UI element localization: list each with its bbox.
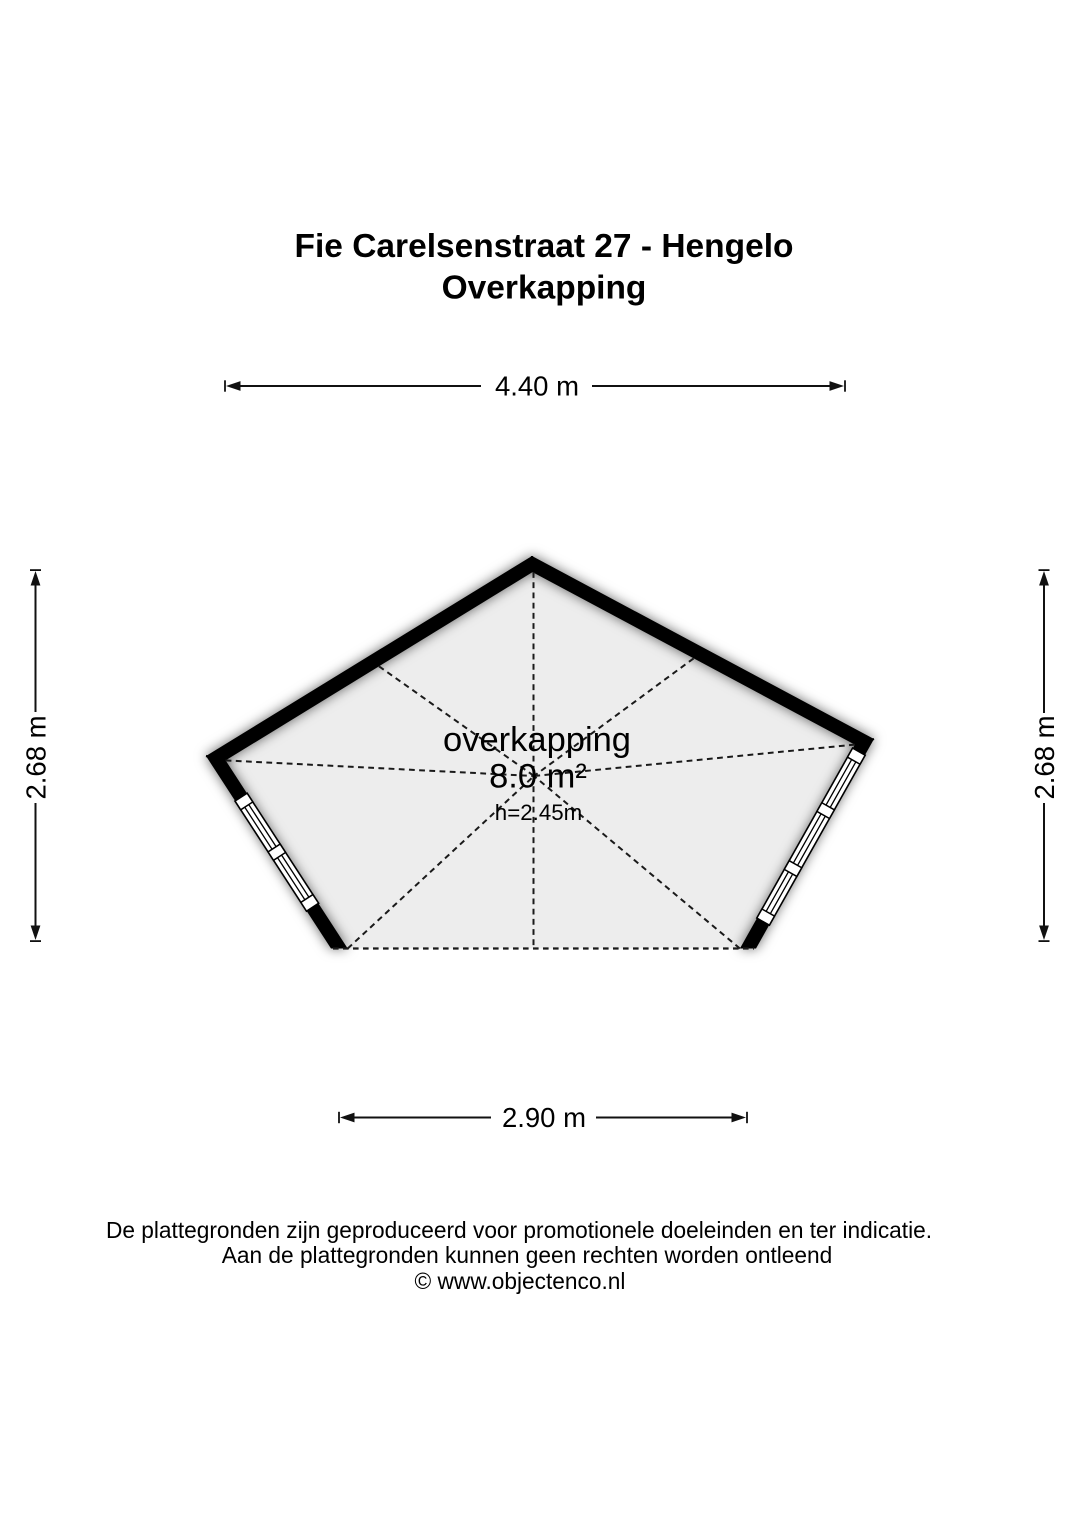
svg-text:2.90 m: 2.90 m	[502, 1102, 586, 1133]
svg-text:2.68 m: 2.68 m	[21, 715, 52, 799]
svg-text:4.40 m: 4.40 m	[495, 371, 579, 402]
svg-text:2.68 m: 2.68 m	[1029, 715, 1060, 799]
svg-text:© www.objectenco.nl: © www.objectenco.nl	[415, 1268, 626, 1294]
svg-text:h=2.45m: h=2.45m	[495, 800, 582, 825]
svg-text:8.0 m²: 8.0 m²	[489, 758, 587, 796]
svg-text:overkapping: overkapping	[443, 721, 631, 759]
svg-text:Fie Carelsenstraat 27 - Hengel: Fie Carelsenstraat 27 - Hengelo	[295, 228, 794, 265]
svg-text:Overkapping: Overkapping	[442, 270, 647, 307]
svg-text:Aan de plattegronden kunnen ge: Aan de plattegronden kunnen geen rechten…	[222, 1242, 833, 1268]
svg-text:De plattegronden zijn geproduc: De plattegronden zijn geproduceerd voor …	[106, 1217, 932, 1243]
